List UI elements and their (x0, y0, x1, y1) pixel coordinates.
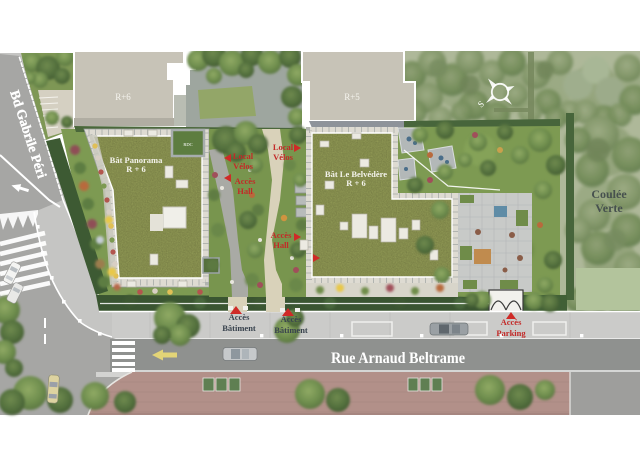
svg-text:Bâtiment: Bâtiment (222, 323, 256, 333)
svg-text:R + 6: R + 6 (126, 164, 145, 174)
svg-text:Accès: Accès (271, 230, 292, 240)
svg-text:Local: Local (273, 142, 294, 152)
svg-text:RDC: RDC (183, 142, 192, 147)
svg-text:Hall: Hall (273, 240, 289, 250)
svg-text:Accès: Accès (501, 317, 522, 327)
svg-text:Vélos: Vélos (233, 161, 254, 171)
svg-text:Hall: Hall (237, 186, 253, 196)
svg-text:Verte: Verte (595, 201, 623, 215)
svg-text:Accès: Accès (229, 312, 250, 322)
svg-text:Vélos: Vélos (273, 152, 294, 162)
svg-text:R+6: R+6 (115, 92, 131, 102)
svg-text:R + 6: R + 6 (346, 178, 365, 188)
svg-text:R+5: R+5 (344, 92, 360, 102)
svg-text:Accès: Accès (281, 314, 302, 324)
svg-text:Local: Local (233, 151, 254, 161)
svg-text:Rue Arnaud Beltrame: Rue Arnaud Beltrame (331, 350, 465, 367)
svg-text:Parking: Parking (496, 328, 526, 338)
svg-text:Coulée: Coulée (591, 187, 627, 201)
svg-text:Accès: Accès (235, 176, 256, 186)
svg-text:Bâtiment: Bâtiment (274, 325, 308, 335)
